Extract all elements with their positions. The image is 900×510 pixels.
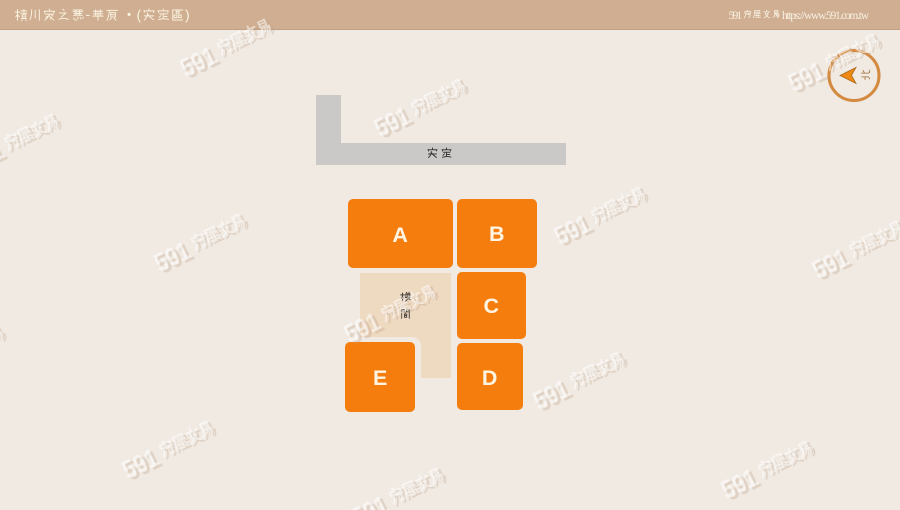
svg-text:(: ( — [137, 7, 142, 23]
svg-text:-: - — [86, 6, 91, 22]
svg-text:): ) — [185, 7, 190, 23]
svg-text:•: • — [127, 8, 131, 22]
svg-text:591: 591 — [729, 10, 743, 22]
svg-text:https://www.591.com.tw: https://www.591.com.tw — [782, 10, 870, 22]
